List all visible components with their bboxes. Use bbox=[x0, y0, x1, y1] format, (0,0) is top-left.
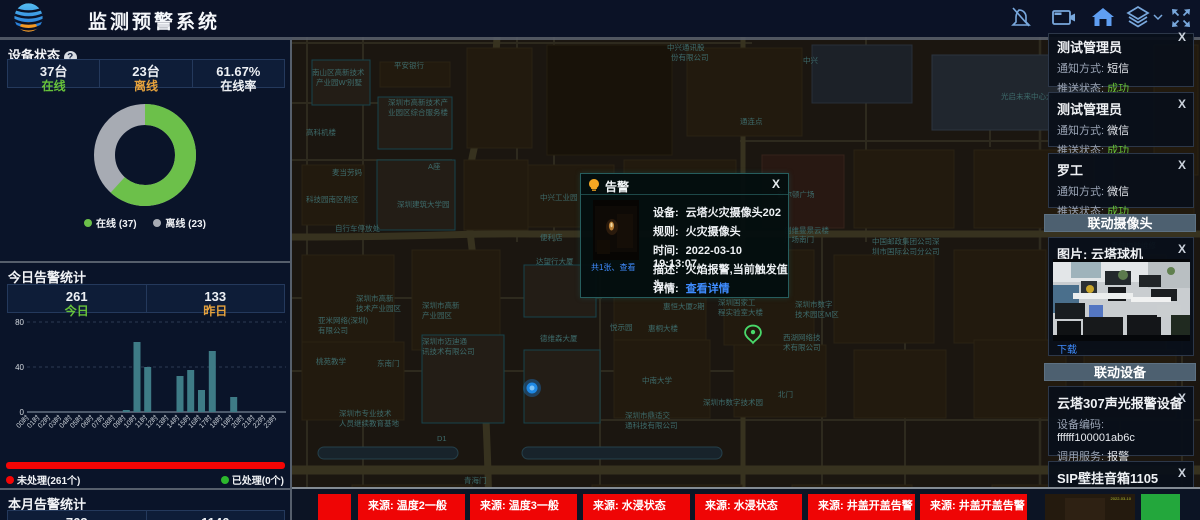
svg-text:圳市国际公司分公司: 圳市国际公司分公司 bbox=[872, 246, 940, 256]
svg-text:惠恒大厦2期: 惠恒大厦2期 bbox=[663, 301, 705, 311]
svg-text:自行车停放处: 自行车停放处 bbox=[335, 223, 380, 233]
svg-text:西湖网络技: 西湖网络技 bbox=[783, 332, 821, 342]
svg-text:通连点: 通连点 bbox=[740, 116, 763, 126]
svg-text:讯技术有限公司: 讯技术有限公司 bbox=[422, 346, 475, 356]
svg-text:南山区高新技术: 南山区高新技术 bbox=[312, 67, 365, 77]
svg-text:A座: A座 bbox=[428, 161, 441, 171]
svg-text:光启未来中心大: 光启未来中心大 bbox=[1001, 91, 1054, 101]
svg-text:中南大学: 中南大学 bbox=[642, 375, 672, 385]
svg-text:深圳国家工: 深圳国家工 bbox=[718, 297, 756, 307]
svg-text:亚米网络(深圳): 亚米网络(深圳) bbox=[318, 315, 368, 325]
svg-text:产业园区: 产业园区 bbox=[422, 310, 452, 320]
svg-text:通科技有限公司: 通科技有限公司 bbox=[625, 420, 678, 430]
svg-text:达望行大厦: 达望行大厦 bbox=[536, 256, 574, 266]
svg-text:深圳市高新: 深圳市高新 bbox=[422, 300, 460, 310]
svg-text:桃苑教学: 桃苑教学 bbox=[316, 356, 346, 366]
svg-text:深圳市迈迪通: 深圳市迈迪通 bbox=[422, 336, 467, 346]
svg-text:悦示园: 悦示园 bbox=[610, 322, 633, 332]
svg-text:中国邮政集团公司深: 中国邮政集团公司深 bbox=[872, 236, 940, 246]
svg-text:人员继续教育基地: 人员继续教育基地 bbox=[339, 418, 399, 428]
svg-text:有限公司: 有限公司 bbox=[318, 325, 348, 335]
svg-text:深圳建筑大学园: 深圳建筑大学园 bbox=[397, 199, 450, 209]
svg-text:程实验室大楼: 程实验室大楼 bbox=[718, 307, 763, 317]
svg-text:深圳市高新: 深圳市高新 bbox=[356, 293, 394, 303]
svg-text:北门: 北门 bbox=[778, 390, 793, 399]
svg-text:深圳市高新技术产: 深圳市高新技术产 bbox=[388, 97, 448, 107]
svg-text:东南门: 东南门 bbox=[377, 358, 400, 368]
svg-text:青海门: 青海门 bbox=[464, 475, 487, 485]
svg-text:产业园W'别墅: 产业园W'别墅 bbox=[316, 77, 363, 87]
svg-text:深圳市数字技术园: 深圳市数字技术园 bbox=[703, 397, 763, 407]
svg-text:业园区综合服务楼: 业园区综合服务楼 bbox=[388, 107, 448, 117]
svg-text:份有限公司: 份有限公司 bbox=[671, 52, 709, 62]
svg-text:平安银行: 平安银行 bbox=[394, 60, 424, 70]
svg-text:中兴通讯股: 中兴通讯股 bbox=[667, 42, 705, 52]
svg-text:中兴: 中兴 bbox=[803, 55, 818, 65]
svg-text:80: 80 bbox=[15, 318, 24, 327]
svg-text:D1: D1 bbox=[437, 434, 447, 443]
svg-text:创维曼景云楼: 创维曼景云楼 bbox=[784, 225, 829, 235]
svg-text:术有限公司: 术有限公司 bbox=[783, 342, 821, 352]
svg-text:科技园南区附区: 科技园南区附区 bbox=[306, 194, 359, 204]
svg-text:中兴工业园: 中兴工业园 bbox=[540, 192, 578, 202]
svg-text:40: 40 bbox=[15, 363, 24, 372]
svg-text:深圳市数字: 深圳市数字 bbox=[795, 299, 833, 309]
svg-text:惠桐大楼: 惠桐大楼 bbox=[648, 323, 678, 333]
svg-text:技术园区M区: 技术园区M区 bbox=[795, 309, 839, 319]
svg-text:麦当劳妈: 麦当劳妈 bbox=[332, 167, 362, 177]
svg-text:深圳市鼎适交: 深圳市鼎适交 bbox=[625, 410, 670, 420]
svg-text:德维森大厦: 德维森大厦 bbox=[540, 333, 578, 343]
svg-text:深圳市专业技术: 深圳市专业技术 bbox=[339, 408, 392, 418]
svg-text:便利店: 便利店 bbox=[540, 232, 563, 242]
svg-text:技术产业园区: 技术产业园区 bbox=[356, 303, 401, 313]
svg-text:高科机楼: 高科机楼 bbox=[306, 127, 336, 137]
